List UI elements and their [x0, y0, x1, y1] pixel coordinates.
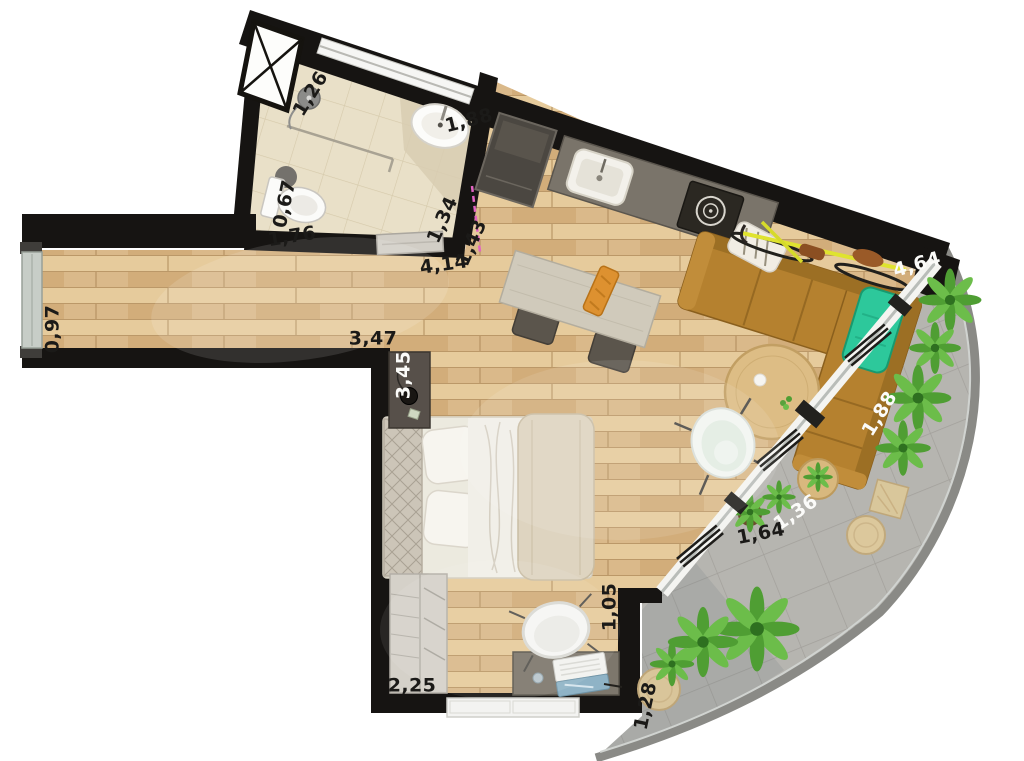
- wicker-stool: [847, 516, 885, 554]
- hallway-top-wall: [22, 214, 256, 248]
- dimension-label: 0,97: [42, 305, 64, 353]
- dimension-label: 1,05: [599, 583, 621, 631]
- dimension-label: 3,45: [393, 351, 415, 399]
- radiator-window: [447, 698, 579, 717]
- balcony-palm: [714, 586, 799, 671]
- tufted-headboard: [384, 419, 422, 576]
- dimension-label: 2,25: [388, 675, 436, 697]
- floor-plan-canvas: 1,26 1,88 0,67 1,76 1,34 1,43 4,14 0,97 …: [0, 0, 1024, 761]
- balcony-plant: [875, 420, 931, 476]
- balcony-plant: [919, 269, 982, 332]
- floor-plan-stage: 1,26 1,88 0,67 1,76 1,34 1,43 4,14 0,97 …: [0, 0, 1024, 761]
- balcony-plant: [650, 642, 694, 686]
- hallway-window: [22, 252, 42, 348]
- dimension-label: 3,47: [349, 328, 397, 350]
